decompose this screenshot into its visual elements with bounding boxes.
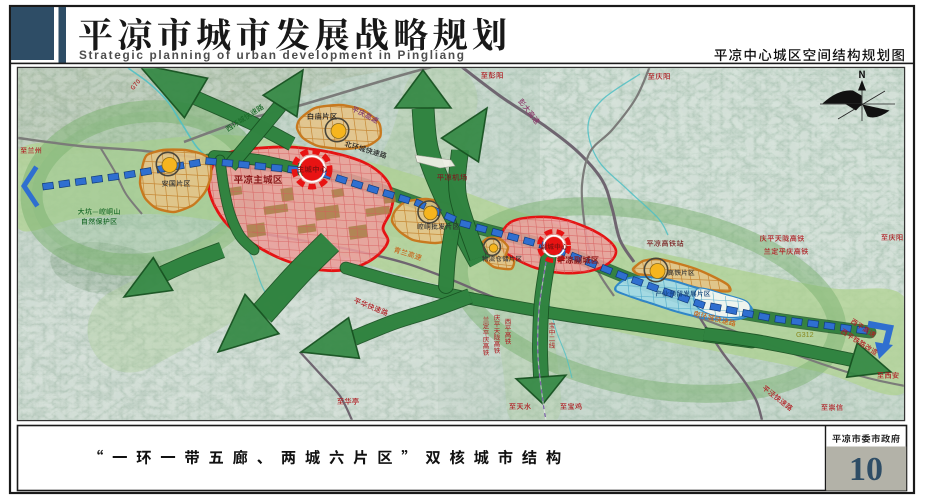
svg-text:10: 10 bbox=[849, 451, 883, 488]
svg-text:Strategic planning of urban de: Strategic planning of urban development … bbox=[79, 48, 464, 62]
svg-text:G312: G312 bbox=[796, 330, 814, 339]
